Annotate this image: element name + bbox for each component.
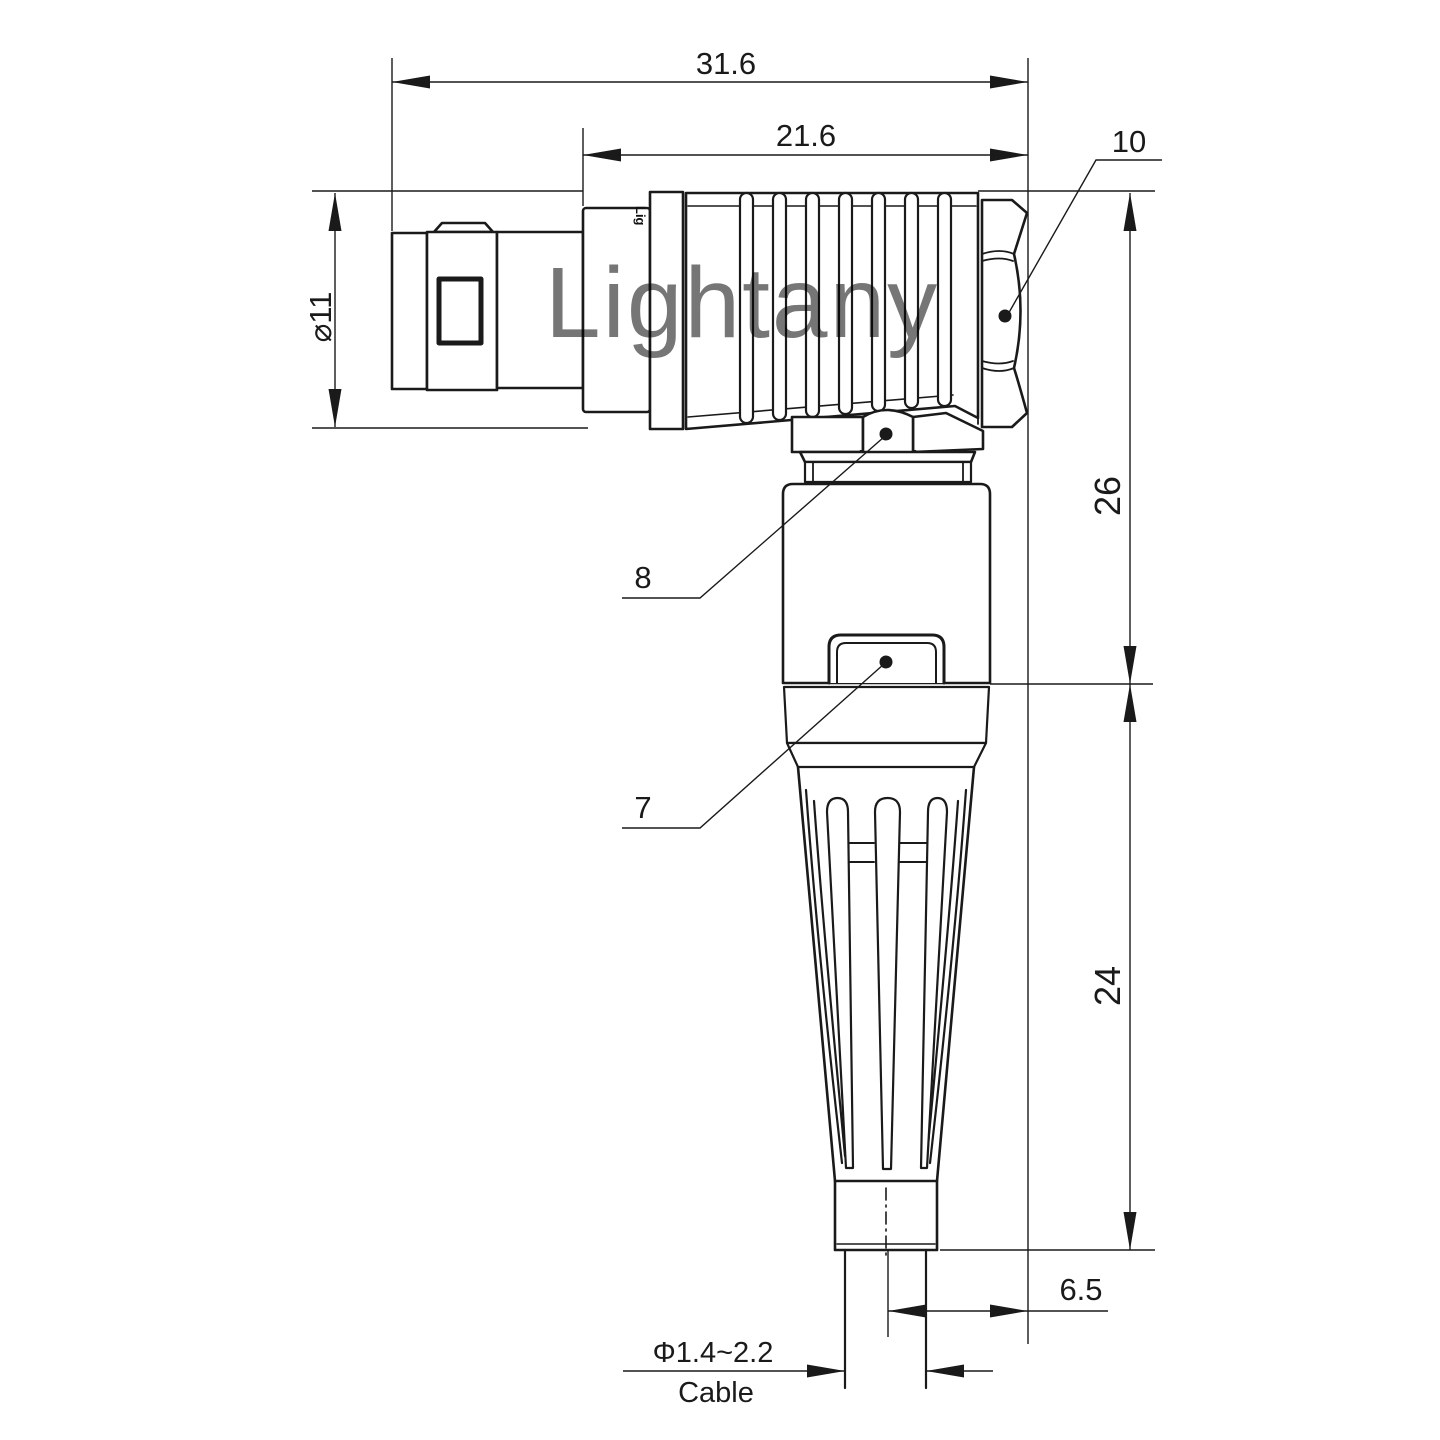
drawing-sheet: Lig: [0, 0, 1440, 1440]
latch-bump: [434, 223, 493, 232]
taper-band-upper: [784, 687, 989, 743]
cable-lines: [845, 1250, 926, 1388]
elbow-neck: [805, 462, 971, 482]
elbow-hex-skirt: [800, 452, 975, 462]
elbow-hex-nut: [792, 410, 983, 482]
part-label-8: 8: [634, 560, 651, 595]
cable-exit: [835, 1181, 937, 1388]
molded-logo-text: Lig: [633, 206, 648, 226]
dim-overall-length-label: 31.6: [696, 46, 756, 81]
leader-part-10: [1007, 160, 1162, 316]
arrow-icon: [1124, 193, 1137, 231]
part-dot-8: [880, 428, 893, 441]
arrow-icon: [392, 76, 430, 89]
dim-diameter-label: ⌀11: [303, 292, 338, 343]
part-label-7: 7: [634, 790, 651, 825]
taper-band-lower: [787, 743, 986, 767]
arrow-icon: [329, 193, 342, 231]
technical-drawing: Lig: [0, 0, 1440, 1440]
dim-upper-height-label: 26: [1087, 476, 1128, 516]
arrow-icon: [1124, 1212, 1137, 1250]
watermark-text: Lightany: [545, 247, 939, 359]
dim-boot-length-label: 21.6: [776, 118, 836, 153]
part-dot-7: [880, 656, 893, 669]
boot-fin: [938, 193, 951, 406]
taper-bands: [784, 687, 989, 767]
latch-window: [439, 279, 481, 343]
part-dot-10: [999, 310, 1012, 323]
arrow-icon: [1124, 646, 1137, 684]
arrow-icon: [888, 1305, 926, 1318]
plug-end-cap: [392, 233, 427, 389]
cone-fin: [875, 798, 900, 1169]
arrow-icon: [990, 76, 1028, 89]
elbow-hex-left-facet: [792, 417, 863, 452]
strain-relief-cone: [798, 767, 974, 1181]
arrow-icon: [1124, 684, 1137, 722]
arrow-icon: [807, 1365, 845, 1378]
housing-body: [783, 484, 990, 683]
connector-side-view: Lig: [392, 192, 1027, 1388]
dim-lower-height-label: 24: [1087, 966, 1128, 1006]
arrow-icon: [926, 1365, 964, 1378]
cable-word-label: Cable: [678, 1377, 754, 1409]
dim-rear-offset-label: 6.5: [1059, 1272, 1102, 1307]
arrow-icon: [583, 149, 621, 162]
arrow-icon: [990, 1305, 1028, 1318]
elbow-hex-right-facet: [913, 413, 983, 452]
arrow-icon: [990, 149, 1028, 162]
part-label-10: 10: [1112, 124, 1146, 159]
dim-cable-diameter-label: Φ1.4~2.2: [653, 1337, 774, 1369]
arrow-icon: [329, 389, 342, 427]
